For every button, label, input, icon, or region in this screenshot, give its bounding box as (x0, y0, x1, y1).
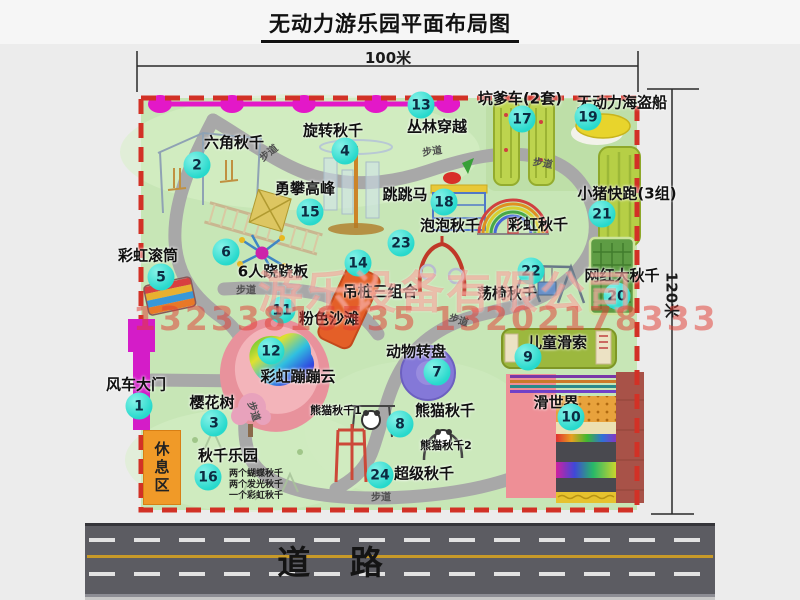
label-bubble-swing: 泡泡秋千 (420, 215, 480, 236)
badge-3: 3 (201, 410, 228, 437)
road-dash-line-top (89, 538, 711, 542)
label-peak-climbing: 勇攀高峰 (275, 178, 335, 199)
label-piggy-run: 小猪快跑(3组) (577, 183, 676, 204)
label-panda-swing-2: 熊猫秋千2 (420, 437, 472, 453)
label-swing-park: 秋千乐园 (198, 445, 258, 466)
badge-2: 2 (184, 152, 211, 179)
badge-10: 10 (558, 404, 585, 431)
badge-1: 1 (126, 393, 153, 420)
badge-4: 4 (332, 138, 359, 165)
dim-height-label: 120米 (662, 272, 683, 318)
label-panda-swing: 熊猫秋千 (415, 400, 475, 421)
dim-width-label: 100米 (365, 47, 411, 68)
badge-22: 22 (518, 258, 545, 285)
badge-14: 14 (345, 250, 372, 277)
label-windmill-gate: 风车大门 (106, 374, 166, 395)
badge-24: 24 (367, 462, 394, 489)
walkway-label-3: 步道 (532, 153, 554, 171)
rest-area: 休息区 (143, 430, 181, 505)
label-hexagon-swing: 六角秋千 (204, 132, 264, 153)
badge-20: 20 (604, 283, 631, 310)
rest-area-label: 休息区 (152, 441, 173, 495)
label-six-person-seesaw: 6人跷跷板 (238, 261, 308, 282)
label-chair-swing: 荡椅秋千 (477, 283, 537, 304)
badge-5: 5 (148, 264, 175, 291)
swing-park-note-3: 一个彩虹秋千 (229, 488, 283, 501)
badge-19: 19 (575, 104, 602, 131)
badge-17: 17 (509, 106, 536, 133)
label-rainbow-bounce-cloud: 彩虹蹦蹦云 (260, 366, 335, 387)
badge-23: 23 (388, 230, 415, 257)
label-super-swing: 超级秋千 (394, 463, 454, 484)
badge-9: 9 (515, 344, 542, 371)
badge-12: 12 (258, 338, 285, 365)
label-rotating-swing: 旋转秋千 (303, 120, 363, 141)
label-rainbow-swing: 彩虹秋千 (508, 214, 568, 235)
label-pink-beach: 粉色沙滩 (299, 308, 359, 329)
label-panda-swing-1: 熊猫秋千1 (310, 402, 362, 418)
playground-map-canvas: 无动力游乐园平面布局图 (0, 0, 800, 600)
walkway-label-7: 步道 (371, 489, 391, 504)
label-jumping-horse: 跳跳马 (382, 184, 427, 205)
badge-21: 21 (589, 201, 616, 228)
walkway-label-4: 步道 (236, 282, 256, 297)
road-label: 道 路 (277, 536, 397, 584)
badge-18: 18 (431, 189, 458, 216)
road-dash-line-bottom (89, 572, 711, 576)
label-rainbow-roller: 彩虹滚筒 (118, 245, 178, 266)
road: 道 路 (85, 523, 715, 597)
label-hanging-piles-combo: 吊桩三组合 (342, 281, 417, 302)
road-center-line (87, 555, 713, 558)
badge-6: 6 (213, 239, 240, 266)
label-big-net-swing: 网红大秋千 (584, 265, 659, 286)
badge-7: 7 (424, 359, 451, 386)
badge-13: 13 (408, 92, 435, 119)
badge-15: 15 (297, 199, 324, 226)
badge-11: 11 (269, 297, 296, 324)
label-jungle-crossing: 丛林穿越 (407, 116, 467, 137)
walkway-label-2: 步道 (421, 141, 443, 159)
badge-8: 8 (387, 411, 414, 438)
badge-16: 16 (195, 464, 222, 491)
